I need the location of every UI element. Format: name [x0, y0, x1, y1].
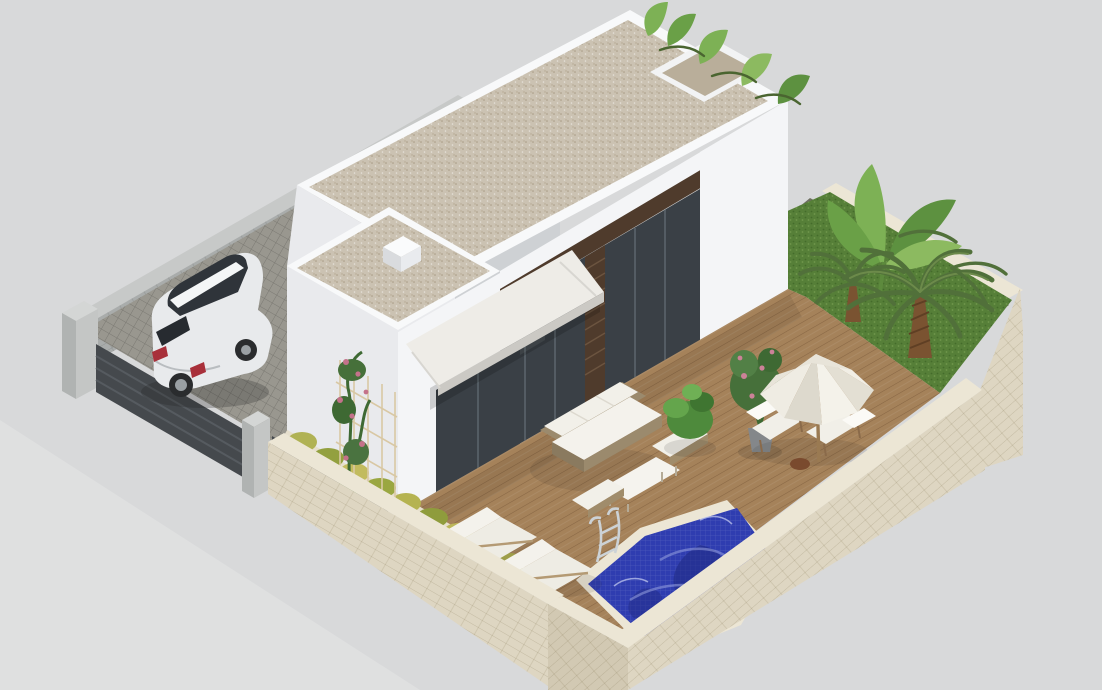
stone-pillar — [62, 313, 76, 399]
car-wheel-rim — [241, 345, 251, 355]
stone-pillar — [76, 309, 98, 399]
wood-slat-pier — [585, 245, 605, 406]
furniture-shadow — [752, 438, 868, 466]
stone-pillar — [242, 420, 254, 498]
rose-foliage — [332, 396, 356, 424]
parasol-base — [790, 458, 810, 470]
render-canvas — [0, 0, 1102, 690]
plant-shadow — [664, 439, 716, 457]
rose-foliage — [343, 439, 369, 465]
plant-foliage — [663, 398, 689, 418]
stone-pillar — [254, 418, 270, 498]
car-wheel-rim — [175, 379, 187, 391]
plant-foliage — [682, 384, 702, 400]
architectural-render — [0, 0, 1102, 690]
rose-foliage — [338, 359, 366, 381]
